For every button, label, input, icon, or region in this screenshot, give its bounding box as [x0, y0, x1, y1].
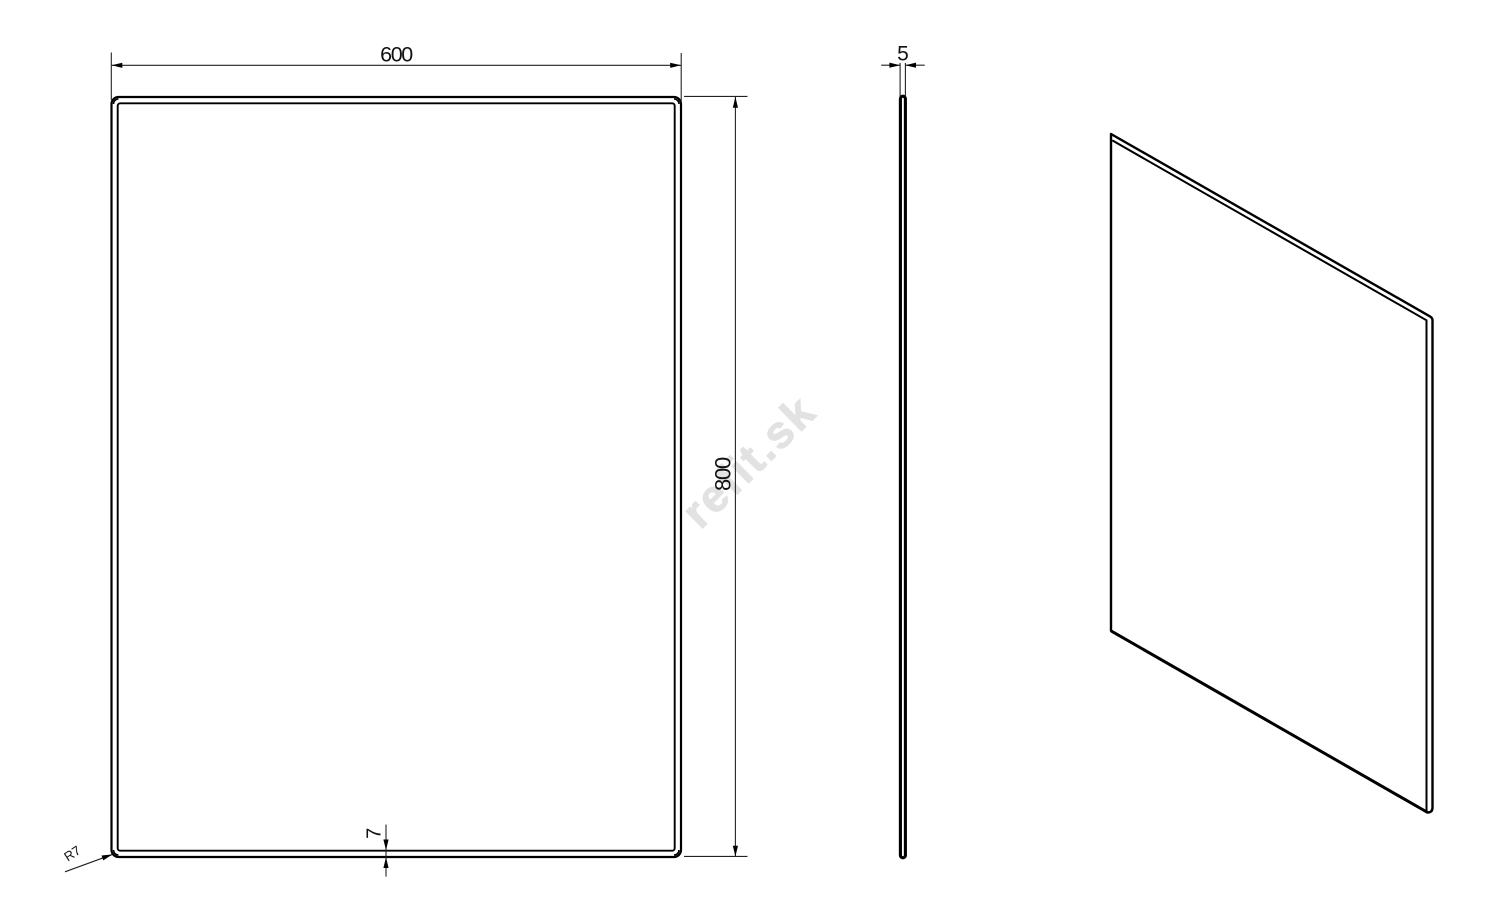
svg-text:800: 800	[711, 457, 736, 491]
svg-text:refit.sk: refit.sk	[672, 385, 826, 538]
svg-text:7: 7	[364, 828, 386, 839]
svg-text:5: 5	[897, 43, 909, 66]
svg-text:600: 600	[380, 42, 413, 66]
svg-text:R7: R7	[61, 843, 83, 865]
